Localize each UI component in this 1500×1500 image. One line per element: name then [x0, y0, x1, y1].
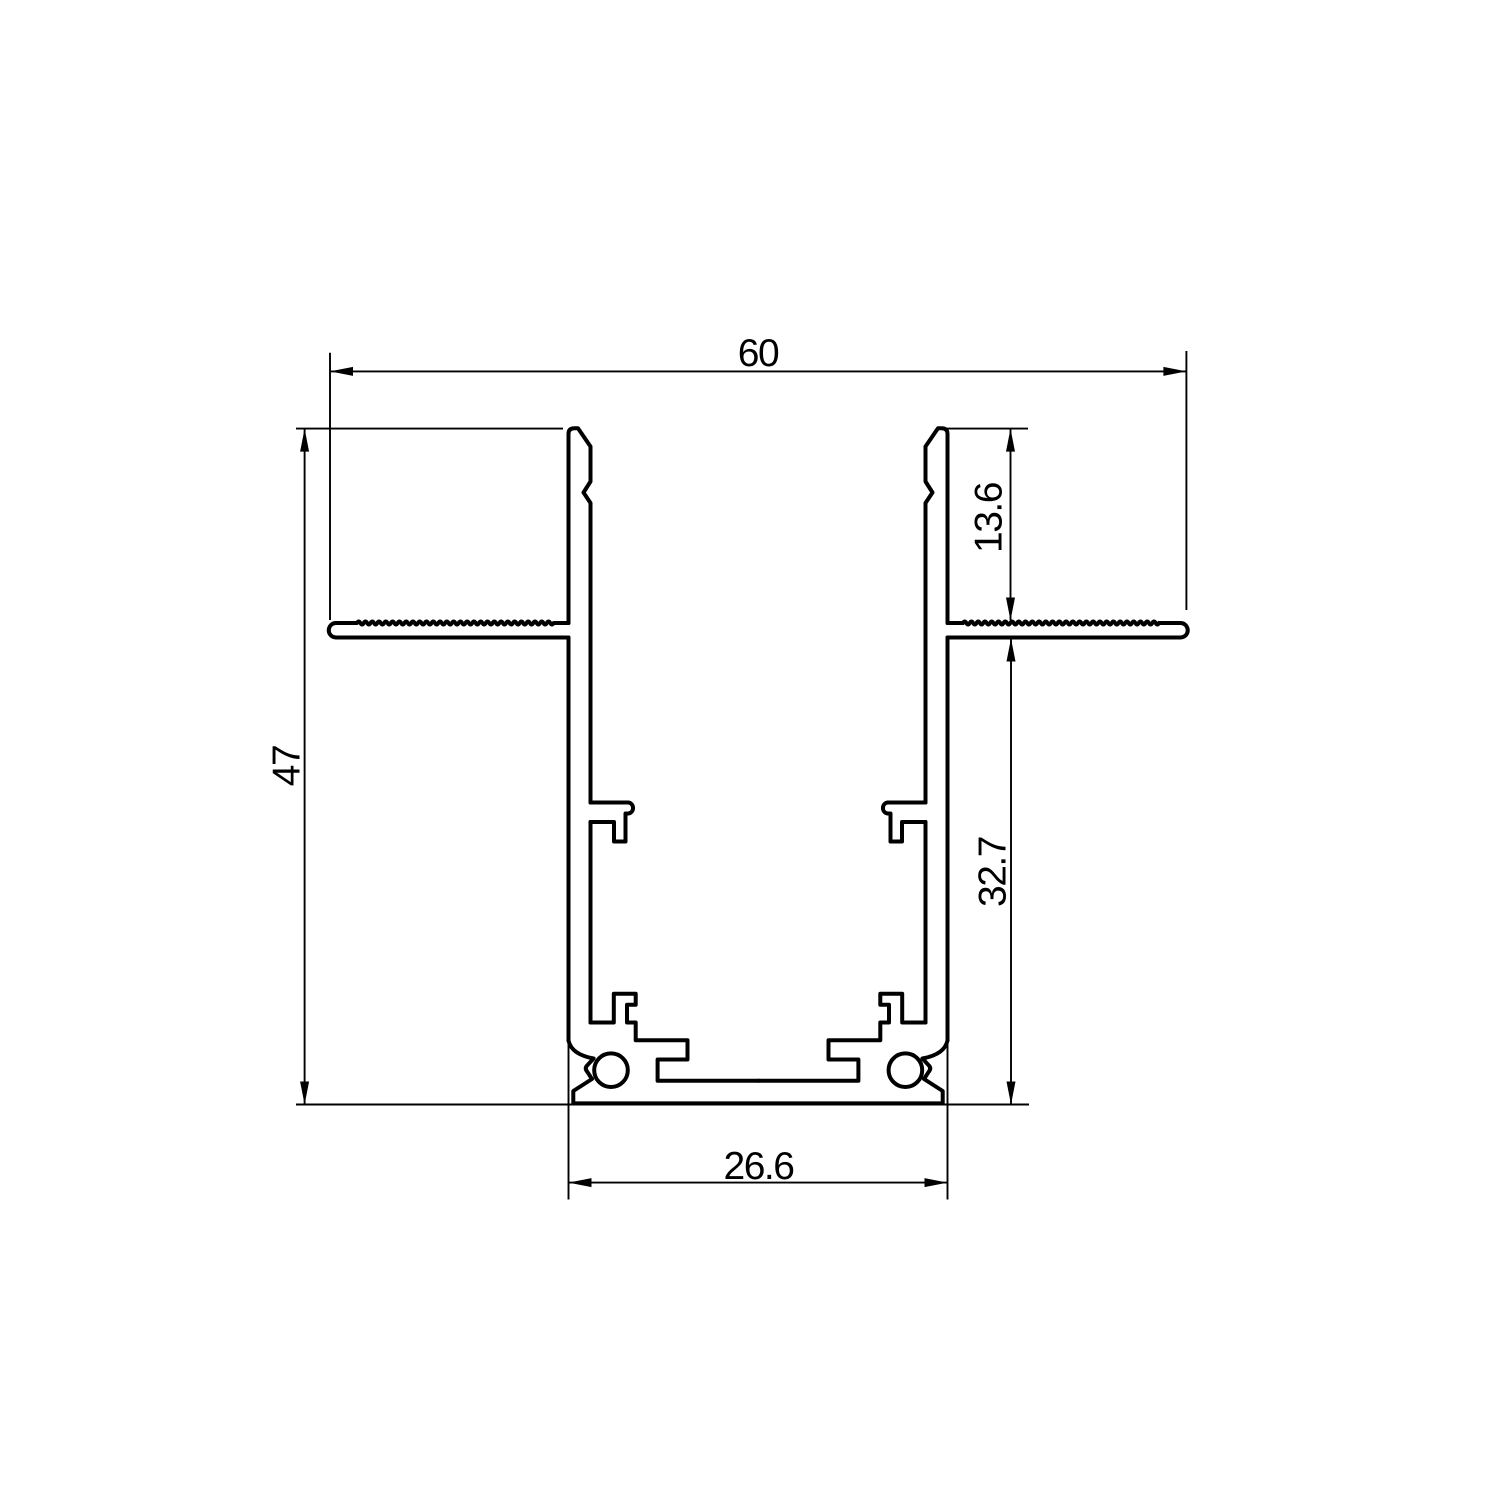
svg-text:60: 60: [738, 332, 779, 375]
svg-text:47: 47: [266, 746, 309, 786]
svg-text:32.7: 32.7: [972, 837, 1015, 907]
svg-text:13.6: 13.6: [968, 483, 1011, 553]
svg-text:26.6: 26.6: [724, 1145, 794, 1188]
